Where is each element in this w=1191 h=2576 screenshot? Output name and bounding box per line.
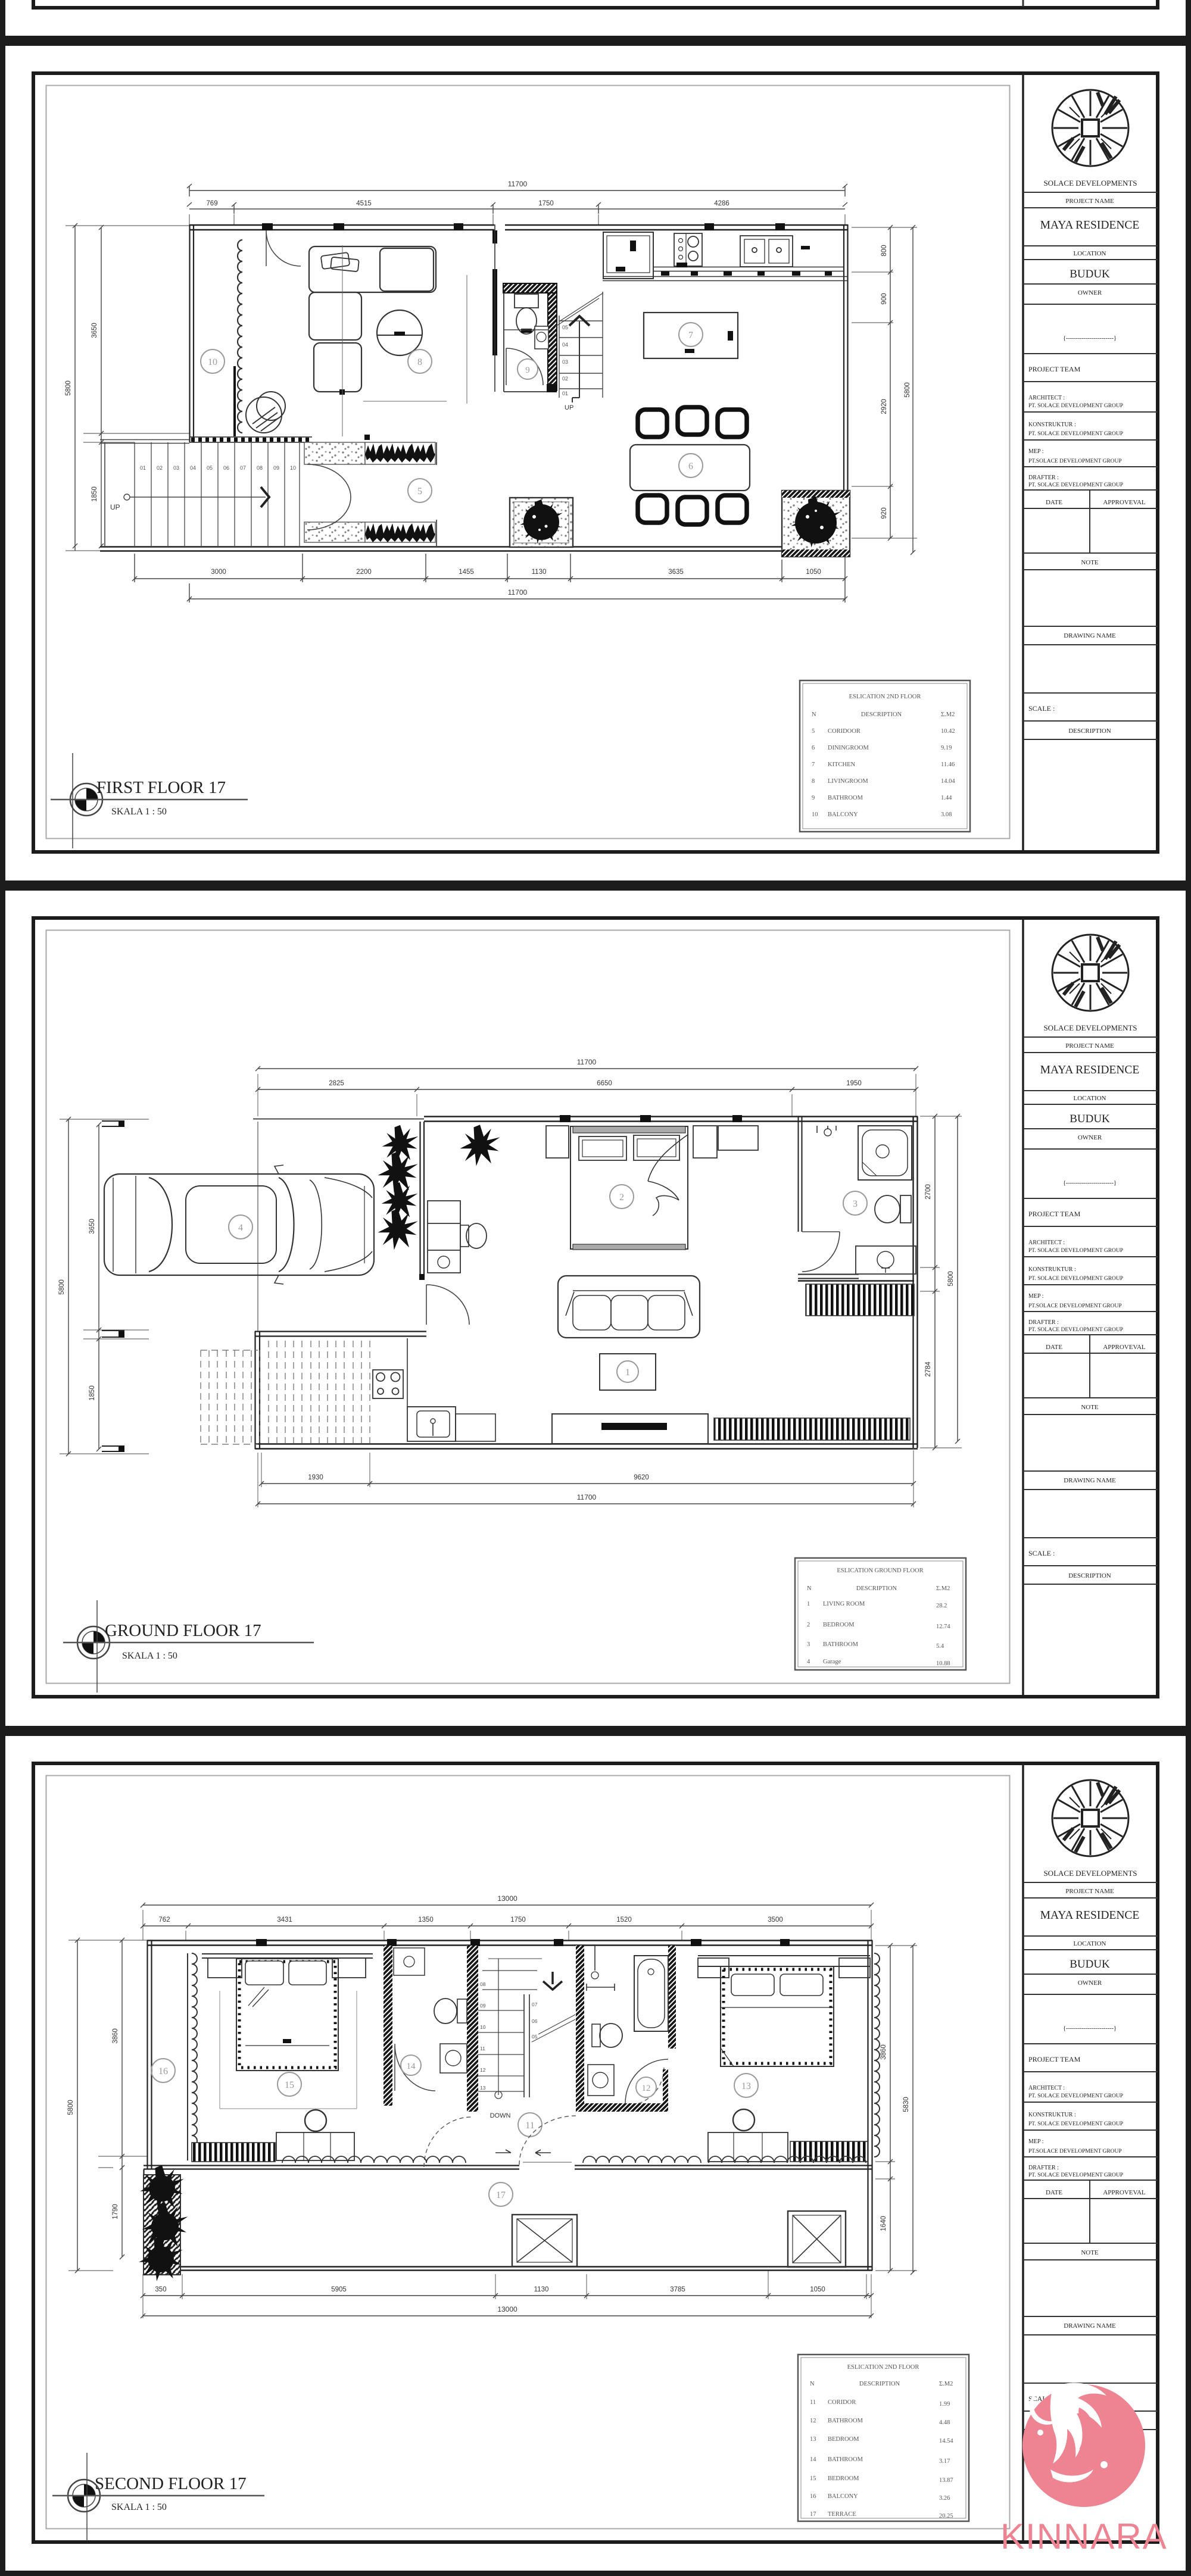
svg-text:5: 5: [812, 728, 815, 735]
svg-text:1130: 1130: [532, 569, 547, 576]
svg-text:11700: 11700: [577, 1058, 597, 1066]
svg-text:TERRACE: TERRACE: [828, 2511, 856, 2518]
svg-text:1520: 1520: [616, 1916, 632, 1924]
svg-text:5800: 5800: [65, 380, 72, 396]
svg-text:15: 15: [285, 2080, 294, 2090]
svg-text:BATHROOM: BATHROOM: [828, 795, 863, 801]
svg-text:5: 5: [417, 486, 422, 497]
svg-text:10: 10: [480, 2024, 486, 2030]
svg-text:02: 02: [562, 376, 568, 382]
svg-text:BEDROOM: BEDROOM: [828, 2475, 859, 2482]
svg-text:BEDROOM: BEDROOM: [823, 1622, 855, 1628]
svg-text:15: 15: [810, 2475, 816, 2482]
svg-text:CORIDOOR: CORIDOOR: [828, 728, 860, 735]
svg-text:10.42: 10.42: [941, 728, 955, 735]
svg-text:3.17: 3.17: [939, 2458, 950, 2465]
svg-text:3785: 3785: [670, 2286, 685, 2293]
svg-text:8: 8: [812, 778, 815, 785]
svg-text:1130: 1130: [534, 2286, 549, 2293]
svg-text:SKALA 1 : 50: SKALA 1 : 50: [122, 1651, 177, 1661]
svg-text:13000: 13000: [497, 2305, 517, 2313]
svg-text:762: 762: [158, 1916, 170, 1924]
svg-text:2: 2: [619, 1192, 624, 1203]
svg-text:KINNARA: KINNARA: [1000, 2516, 1168, 2556]
svg-text:1050: 1050: [806, 569, 821, 576]
svg-text:13: 13: [741, 2081, 751, 2091]
svg-text:11700: 11700: [577, 1493, 597, 1501]
svg-text:11: 11: [480, 2046, 485, 2052]
svg-text:1930: 1930: [308, 1474, 323, 1481]
svg-text:1850: 1850: [89, 1385, 96, 1401]
svg-text:769: 769: [206, 200, 217, 207]
svg-text:7: 7: [812, 761, 815, 768]
svg-text:10: 10: [290, 465, 296, 471]
svg-text:01: 01: [140, 465, 146, 471]
svg-text:Garage: Garage: [823, 1659, 841, 1665]
svg-text:13: 13: [810, 2436, 816, 2443]
svg-text:DESCRIPTION: DESCRIPTION: [861, 711, 902, 718]
svg-text:DININGROOM: DININGROOM: [828, 745, 869, 751]
svg-text:20.25: 20.25: [939, 2513, 953, 2519]
svg-text:4286: 4286: [714, 200, 729, 207]
svg-text:ESLICATION 2ND FLOOR: ESLICATION 2ND FLOOR: [849, 694, 921, 700]
svg-text:1455: 1455: [459, 569, 474, 576]
svg-text:8: 8: [417, 357, 422, 367]
svg-text:SKALA 1 : 50: SKALA 1 : 50: [111, 2502, 167, 2512]
svg-text:13.87: 13.87: [939, 2477, 953, 2484]
svg-text:6650: 6650: [597, 1080, 612, 1087]
svg-text:06: 06: [532, 2018, 538, 2024]
svg-text:2200: 2200: [356, 569, 372, 576]
svg-text:BATHROOM: BATHROOM: [828, 2456, 863, 2463]
svg-text:6: 6: [688, 461, 693, 472]
svg-text:1.44: 1.44: [941, 795, 952, 801]
svg-text:05: 05: [207, 465, 213, 471]
svg-text:3650: 3650: [89, 1219, 96, 1234]
svg-text:1750: 1750: [538, 200, 554, 207]
svg-text:07: 07: [532, 2002, 538, 2007]
svg-text:11700: 11700: [508, 588, 528, 597]
svg-text:BALCONY: BALCONY: [828, 811, 858, 818]
svg-text:3650: 3650: [91, 323, 98, 338]
svg-text:1: 1: [625, 1367, 630, 1378]
svg-text:6: 6: [812, 745, 815, 751]
svg-text:28.2: 28.2: [936, 1603, 947, 1609]
svg-text:UP: UP: [110, 503, 120, 511]
svg-text:16: 16: [158, 2066, 168, 2077]
svg-text:800: 800: [881, 245, 888, 256]
svg-text:9: 9: [525, 366, 530, 375]
svg-text:16: 16: [810, 2493, 816, 2500]
svg-text:900: 900: [881, 293, 888, 304]
svg-text:03: 03: [173, 465, 179, 471]
svg-text:14.04: 14.04: [941, 778, 955, 785]
svg-text:1050: 1050: [810, 2286, 825, 2293]
svg-text:07: 07: [240, 465, 246, 471]
svg-text:5800: 5800: [904, 382, 911, 398]
svg-text:11.46: 11.46: [941, 761, 955, 768]
svg-text:08: 08: [480, 1981, 486, 1987]
svg-text:2825: 2825: [329, 1080, 344, 1087]
svg-text:1: 1: [807, 1601, 810, 1607]
svg-text:2700: 2700: [925, 1184, 932, 1200]
svg-text:14.54: 14.54: [939, 2438, 953, 2444]
svg-text:CORIDOR: CORIDOR: [828, 2399, 856, 2406]
svg-text:Σ.M2: Σ.M2: [939, 2381, 953, 2387]
svg-text:08: 08: [257, 465, 263, 471]
svg-text:09: 09: [273, 465, 279, 471]
svg-text:9620: 9620: [634, 1474, 649, 1481]
svg-text:4515: 4515: [356, 200, 372, 207]
svg-text:12: 12: [642, 2084, 651, 2093]
svg-text:13000: 13000: [497, 1894, 517, 1903]
svg-text:3860: 3860: [880, 2044, 887, 2060]
svg-text:03: 03: [562, 359, 568, 365]
svg-text:GROUND FLOOR 17: GROUND FLOOR 17: [105, 1621, 261, 1640]
svg-text:5800: 5800: [58, 1279, 66, 1295]
svg-text:920: 920: [881, 507, 888, 519]
svg-text:9: 9: [812, 795, 815, 801]
svg-text:05: 05: [532, 2034, 538, 2040]
svg-text:5905: 5905: [331, 2286, 347, 2293]
svg-text:17: 17: [496, 2190, 506, 2200]
svg-text:LIVING ROOM: LIVING ROOM: [823, 1601, 865, 1607]
svg-text:4: 4: [807, 1659, 810, 1665]
svg-text:FIRST FLOOR 17: FIRST FLOOR 17: [96, 778, 226, 797]
svg-text:350: 350: [155, 2286, 166, 2293]
svg-text:3.26: 3.26: [939, 2495, 950, 2502]
svg-text:5800: 5800: [67, 2100, 74, 2115]
svg-text:N: N: [807, 1585, 812, 1592]
svg-text:3635: 3635: [668, 569, 684, 576]
svg-text:13: 13: [480, 2085, 486, 2091]
svg-text:4: 4: [238, 1223, 243, 1233]
svg-text:09: 09: [480, 2003, 486, 2009]
svg-text:2920: 2920: [881, 399, 888, 414]
svg-text:3: 3: [807, 1641, 810, 1648]
svg-text:ESLICATION 2ND FLOOR: ESLICATION 2ND FLOOR: [847, 2364, 919, 2371]
svg-text:2784: 2784: [925, 1362, 932, 1377]
svg-text:9.19: 9.19: [941, 745, 952, 751]
svg-text:BEDROOM: BEDROOM: [828, 2436, 859, 2443]
svg-text:3500: 3500: [768, 1916, 783, 1924]
svg-text:12.74: 12.74: [936, 1623, 950, 1630]
svg-text:5.4: 5.4: [936, 1643, 944, 1650]
svg-text:10: 10: [812, 811, 818, 818]
svg-text:1350: 1350: [418, 1916, 434, 1924]
svg-text:06: 06: [223, 465, 229, 471]
svg-text:01: 01: [562, 391, 568, 396]
svg-text:10: 10: [208, 357, 217, 367]
svg-text:11: 11: [525, 2121, 534, 2131]
svg-text:04: 04: [562, 342, 568, 348]
svg-text:N: N: [812, 711, 816, 718]
svg-text:3431: 3431: [277, 1916, 292, 1924]
svg-text:11700: 11700: [508, 180, 528, 188]
svg-text:3: 3: [853, 1199, 858, 1209]
svg-text:N: N: [810, 2381, 815, 2387]
svg-text:14: 14: [407, 2062, 416, 2071]
svg-text:1750: 1750: [510, 1916, 526, 1924]
svg-text:2: 2: [807, 1622, 810, 1628]
svg-text:BALCONY: BALCONY: [828, 2493, 858, 2500]
svg-text:3860: 3860: [112, 2028, 119, 2044]
svg-text:04: 04: [190, 465, 196, 471]
svg-text:1640: 1640: [880, 2216, 887, 2231]
svg-text:UP: UP: [565, 404, 573, 411]
svg-text:02: 02: [157, 465, 163, 471]
svg-text:3000: 3000: [211, 569, 226, 576]
svg-text:LIVINGROOM: LIVINGROOM: [828, 778, 868, 785]
svg-text:BATHROOM: BATHROOM: [823, 1641, 859, 1648]
svg-text:DOWN: DOWN: [490, 2112, 511, 2119]
svg-text:BATHROOM: BATHROOM: [828, 2418, 863, 2424]
svg-text:14: 14: [810, 2456, 816, 2463]
svg-text:KITCHEN: KITCHEN: [828, 761, 855, 768]
svg-text:ESLICATION GROUND FLOOR: ESLICATION GROUND FLOOR: [837, 1568, 923, 1574]
svg-text:DESCRIPTION: DESCRIPTION: [859, 2381, 900, 2387]
svg-text:DESCRIPTION: DESCRIPTION: [856, 1585, 897, 1592]
svg-text:5800: 5800: [947, 1271, 955, 1287]
svg-text:7: 7: [688, 330, 693, 341]
svg-text:Σ.M2: Σ.M2: [941, 711, 955, 718]
svg-text:SKALA 1 : 50: SKALA 1 : 50: [111, 807, 167, 817]
svg-text:4.48: 4.48: [939, 2419, 950, 2426]
svg-text:1850: 1850: [91, 486, 98, 502]
svg-text:1790: 1790: [112, 2204, 119, 2219]
svg-text:05: 05: [562, 324, 568, 330]
svg-text:5830: 5830: [903, 2097, 910, 2112]
svg-text:11: 11: [810, 2399, 816, 2406]
svg-text:3.08: 3.08: [941, 811, 952, 818]
svg-text:Σ.M2: Σ.M2: [936, 1585, 950, 1592]
svg-text:1950: 1950: [846, 1080, 862, 1087]
svg-text:1.99: 1.99: [939, 2401, 950, 2408]
svg-text:17: 17: [810, 2511, 816, 2518]
svg-text:10.88: 10.88: [936, 1660, 950, 1667]
svg-text:12: 12: [480, 2067, 486, 2073]
svg-text:SECOND FLOOR 17: SECOND FLOOR 17: [95, 2474, 247, 2493]
svg-text:12: 12: [810, 2418, 816, 2424]
